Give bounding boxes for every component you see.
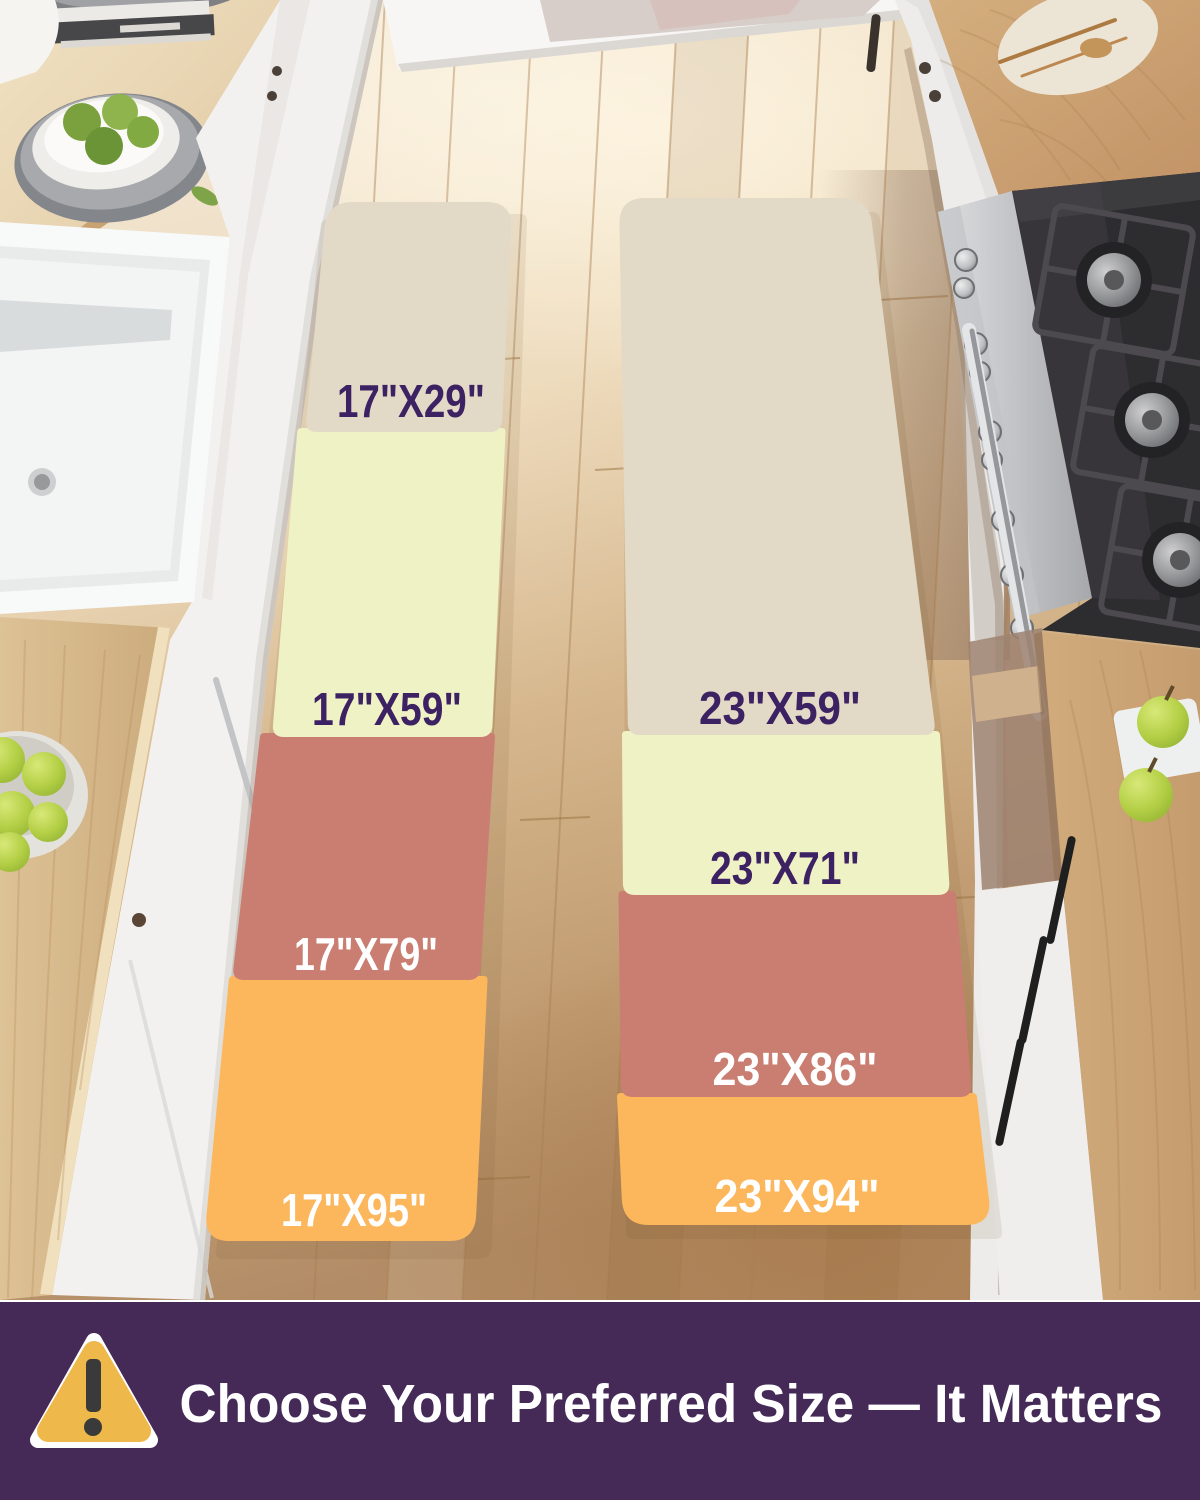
svg-text:17"X79": 17"X79" xyxy=(294,928,438,980)
svg-text:23"X86": 23"X86" xyxy=(713,1043,878,1095)
svg-text:23"X71": 23"X71" xyxy=(710,842,860,894)
svg-text:Choose Your Preferred Size — I: Choose Your Preferred Size — It Matters xyxy=(180,1374,1163,1434)
svg-text:23"X94": 23"X94" xyxy=(715,1170,880,1222)
svg-text:23"X59": 23"X59" xyxy=(699,682,861,734)
svg-text:17"X95": 17"X95" xyxy=(281,1184,427,1236)
svg-text:17"X59": 17"X59" xyxy=(312,683,462,735)
svg-text:17"X29": 17"X29" xyxy=(337,375,485,427)
